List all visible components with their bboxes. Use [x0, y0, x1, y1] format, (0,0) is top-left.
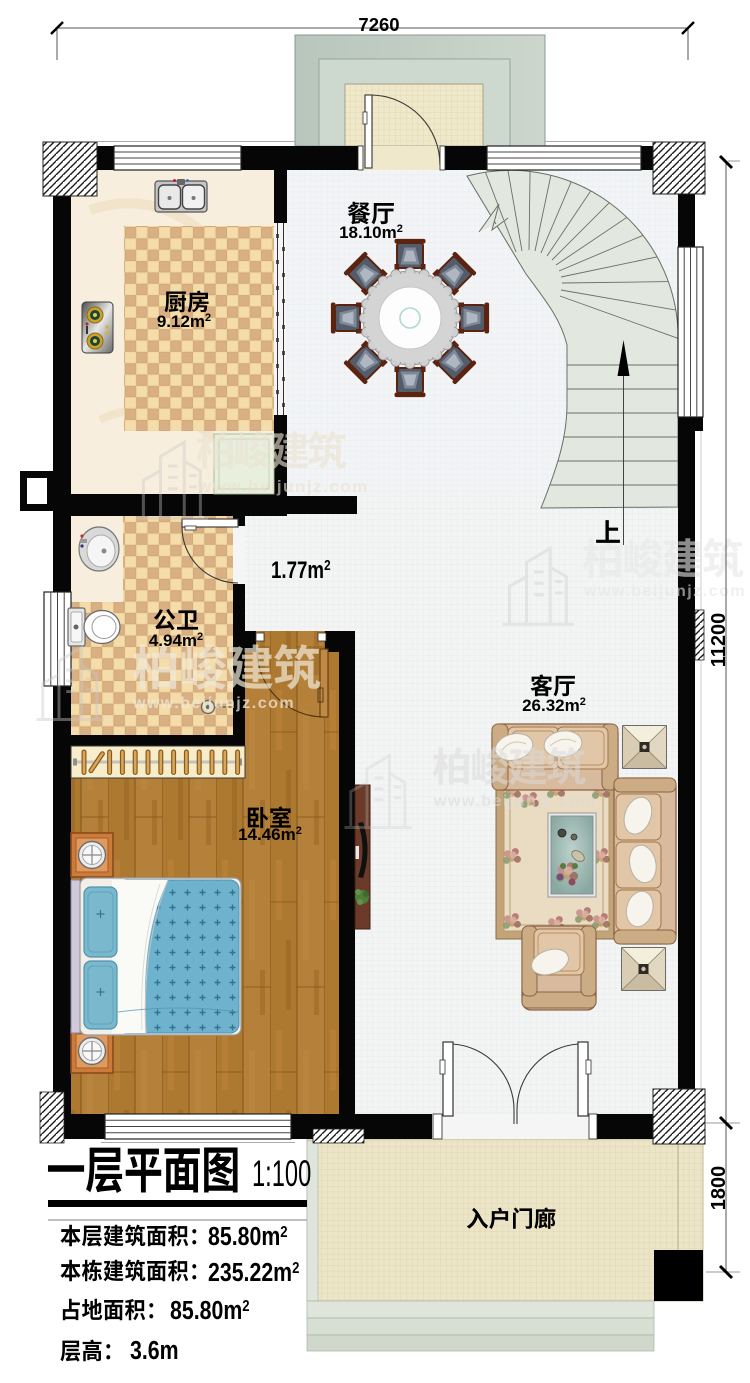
svg-text:1.77m2: 1.77m2	[271, 557, 331, 584]
svg-text:www.beijunjz.com: www.beijunjz.com	[583, 583, 746, 600]
svg-text:4.94m2: 4.94m2	[149, 631, 203, 650]
svg-text:www.beijunjz.com: www.beijunjz.com	[433, 793, 596, 810]
svg-text:235.22m2: 235.22m2	[208, 1258, 299, 1288]
svg-text:9.12m2: 9.12m2	[157, 312, 211, 331]
svg-text:85.80m2: 85.80m2	[208, 1222, 288, 1252]
svg-text:26.32m2: 26.32m2	[522, 696, 586, 715]
svg-text:14.46m2: 14.46m2	[238, 825, 302, 844]
svg-text:7260: 7260	[358, 14, 399, 35]
svg-text:18.10m2: 18.10m2	[339, 223, 403, 242]
svg-text:11200: 11200	[708, 613, 730, 668]
svg-text:85.80m2: 85.80m2	[170, 1296, 250, 1326]
svg-text:3.6m: 3.6m	[130, 1336, 179, 1366]
svg-text:1:100: 1:100	[252, 1153, 311, 1195]
svg-text:www.beijunjz.com: www.beijunjz.com	[132, 695, 295, 712]
svg-text:www.beijunjz.com: www.beijunjz.com	[197, 477, 369, 496]
svg-text:1800: 1800	[708, 1166, 730, 1211]
